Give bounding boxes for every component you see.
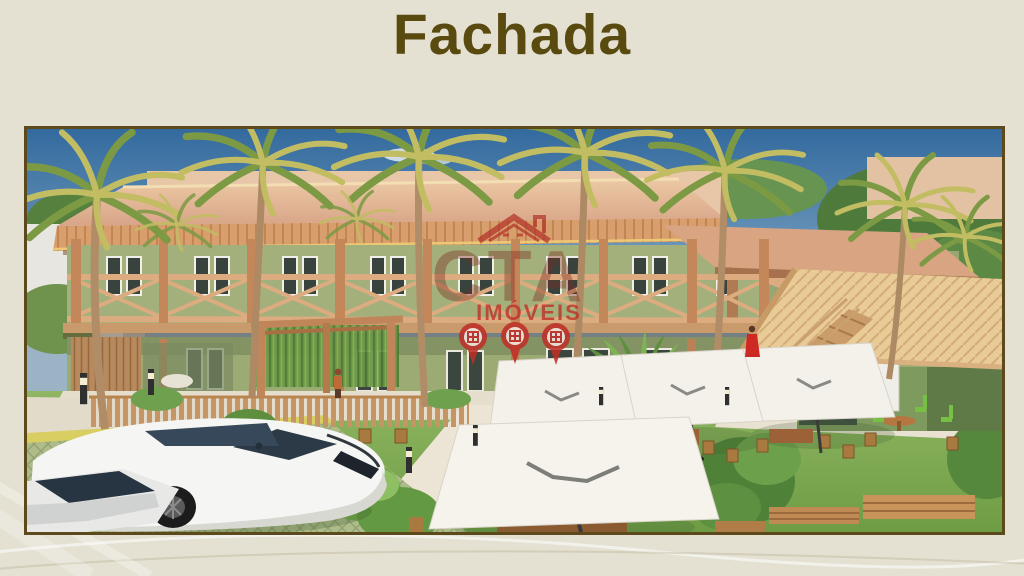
umbrella-large: [429, 417, 719, 532]
lounge-table: [161, 374, 193, 388]
presentation-slide: { "slide": { "title": "Fachada" }, "them…: [0, 0, 1024, 576]
facade-rendering-image: CTA IMÓVEIS: [24, 126, 1005, 535]
vine-pergola: [251, 319, 403, 397]
person-figure: [334, 369, 342, 398]
watermark-word: IMÓVEIS: [476, 300, 582, 325]
page-title: Fachada: [0, 2, 1024, 68]
rendering-scene: CTA IMÓVEIS: [27, 129, 1002, 532]
side-mirror: [256, 443, 263, 450]
